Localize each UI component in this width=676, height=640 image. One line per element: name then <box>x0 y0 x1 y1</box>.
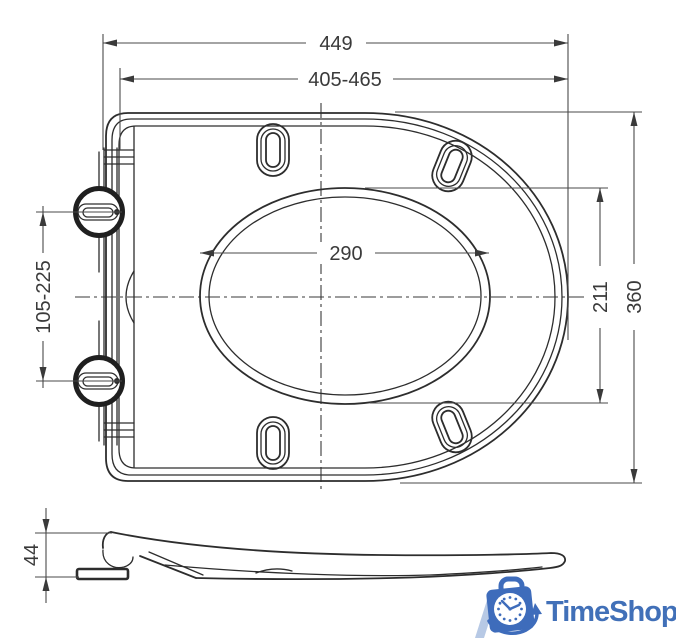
seat-opening-outer <box>200 188 490 404</box>
top-view <box>75 103 585 490</box>
dimension-mounting-range-405-465: 405-465 <box>120 68 568 150</box>
slot-inner <box>439 409 465 446</box>
timeshop-logo: TimeShop <box>475 579 676 638</box>
arrowhead-left-icon <box>120 76 134 83</box>
dimension-label: 360 <box>624 280 646 313</box>
slot-mid <box>433 142 471 190</box>
dimension-label: 105-225 <box>33 260 55 333</box>
dimension-inner-length-290: 290 <box>200 242 489 265</box>
dimension-label: 211 <box>590 281 612 313</box>
slot-inner <box>439 148 465 185</box>
drawing-canvas: 449 405-465 290 211 360 1 <box>0 0 676 640</box>
slot-mid <box>433 403 471 451</box>
clock-icon <box>494 593 526 625</box>
arrowhead-up-icon <box>631 112 638 126</box>
profile-nose-edge <box>103 532 111 548</box>
bumper-slot-top <box>257 124 289 176</box>
hinge-foot-plate <box>77 569 128 579</box>
dimension-label: 405-465 <box>308 69 381 91</box>
arrowhead-down-icon <box>43 519 50 533</box>
side-view <box>77 532 565 579</box>
arrowhead-right-icon <box>475 250 489 257</box>
extension-lines <box>365 188 608 403</box>
arrowhead-down-icon <box>631 469 638 483</box>
dimension-label: 449 <box>319 33 352 55</box>
slot-outer <box>257 417 289 469</box>
slot-inner <box>266 426 280 460</box>
seat-opening-inner <box>209 197 481 395</box>
dimension-profile-height-44: 44 <box>21 508 112 603</box>
slot-outer <box>257 124 289 176</box>
arrowhead-right-icon <box>554 76 568 83</box>
arrowhead-left-icon <box>200 250 214 257</box>
dimension-label: 44 <box>21 544 43 566</box>
arrowhead-right-icon <box>554 40 568 47</box>
dimension-label: 290 <box>329 243 362 265</box>
arrowhead-down-icon <box>597 389 604 403</box>
arrowhead-down-icon <box>40 367 47 381</box>
arrowhead-up-icon <box>40 212 47 226</box>
arrowhead-left-icon <box>103 40 117 47</box>
logo-bag-icon <box>486 579 542 633</box>
bumper-slot-bottom <box>257 417 289 469</box>
arrowhead-up-icon <box>43 577 50 591</box>
dimension-inner-width-211: 211 <box>365 188 612 403</box>
technical-drawing-svg: 449 405-465 290 211 360 1 <box>0 0 676 640</box>
hinge-knuckle-arc <box>103 550 133 568</box>
slot-mid <box>261 129 285 171</box>
arrowhead-up-icon <box>597 188 604 202</box>
slot-mid <box>261 422 285 464</box>
slot-inner <box>266 133 280 167</box>
logo-text: TimeShop <box>546 596 676 628</box>
